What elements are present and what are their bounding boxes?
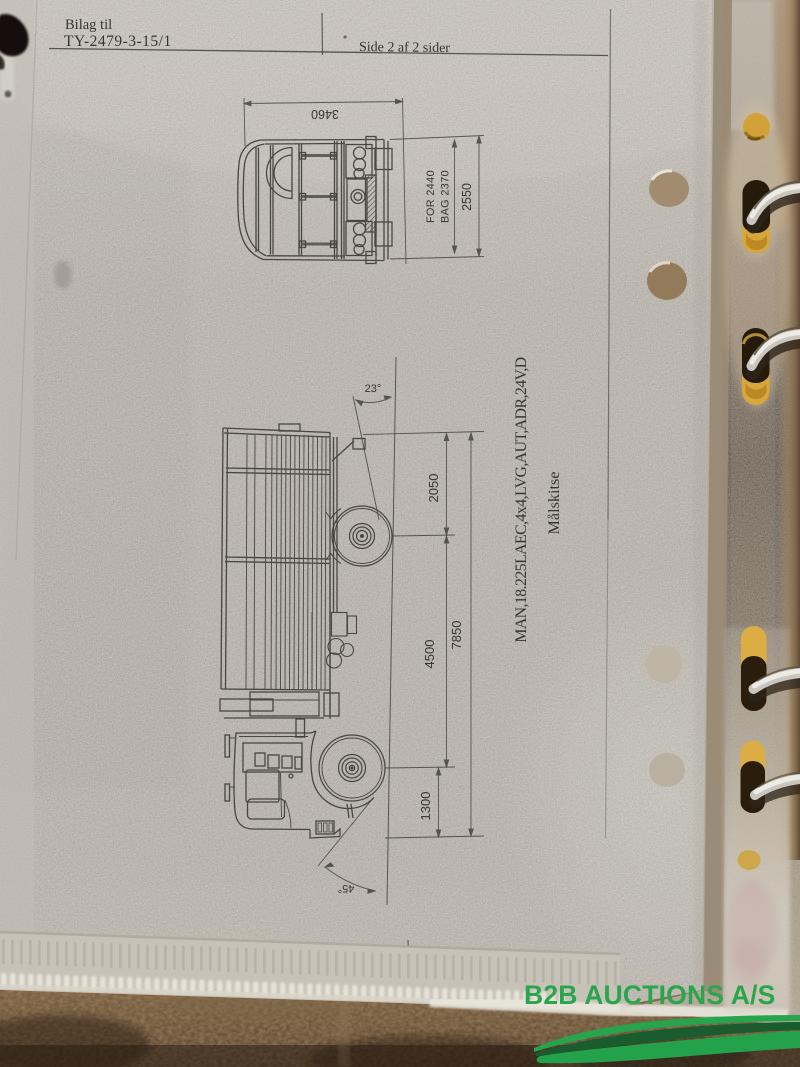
- svg-text:2550: 2550: [460, 183, 474, 211]
- svg-text:1300: 1300: [418, 792, 433, 821]
- svg-text:BAG 2370: BAG 2370: [440, 170, 452, 223]
- svg-text:Bilag til: Bilag til: [65, 17, 112, 33]
- svg-text:B2B AUCTIONS A/S: B2B AUCTIONS A/S: [524, 980, 776, 1010]
- svg-text:2050: 2050: [426, 474, 441, 503]
- svg-text:TY-2479-3-15/1: TY-2479-3-15/1: [64, 33, 172, 50]
- svg-text:4500: 4500: [422, 640, 437, 669]
- svg-text:7850: 7850: [449, 621, 464, 650]
- svg-text:Målskitse: Målskitse: [545, 472, 563, 535]
- svg-text:45°: 45°: [338, 882, 355, 894]
- svg-text:MAN,18.225LAEC,4x4,LVG,AUT,ADR: MAN,18.225LAEC,4x4,LVG,AUT,ADR,24V,D: [513, 357, 530, 642]
- svg-text:FOR 2440: FOR 2440: [425, 170, 437, 223]
- svg-text:23°: 23°: [365, 383, 382, 395]
- svg-text:3460: 3460: [311, 107, 339, 121]
